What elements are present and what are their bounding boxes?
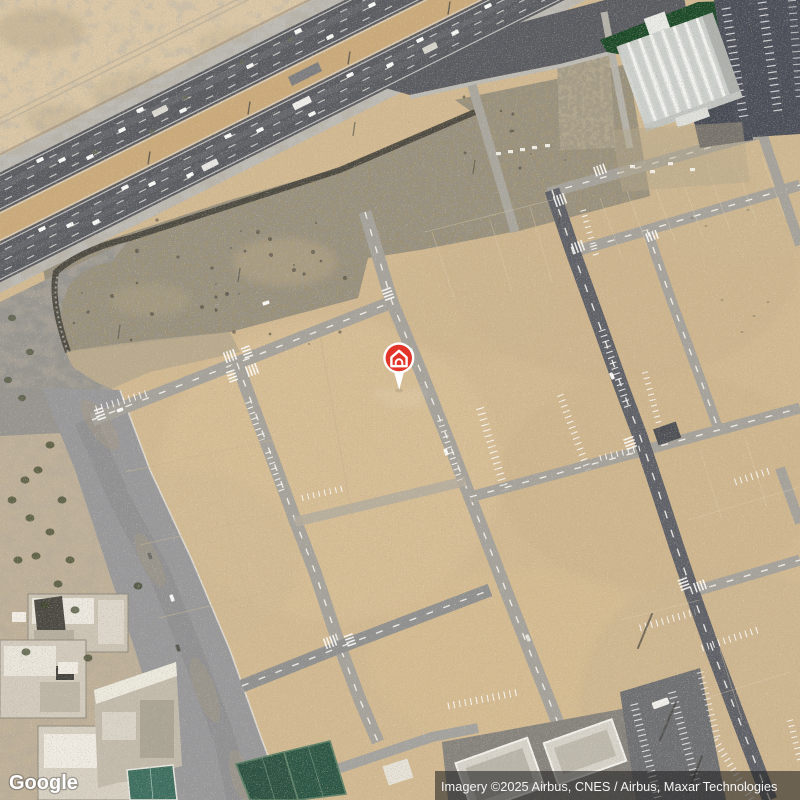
- svg-text:Google: Google: [9, 772, 78, 794]
- svg-text:Imagery ©2025 Airbus, CNES / A: Imagery ©2025 Airbus, CNES / Airbus, Max…: [441, 779, 777, 794]
